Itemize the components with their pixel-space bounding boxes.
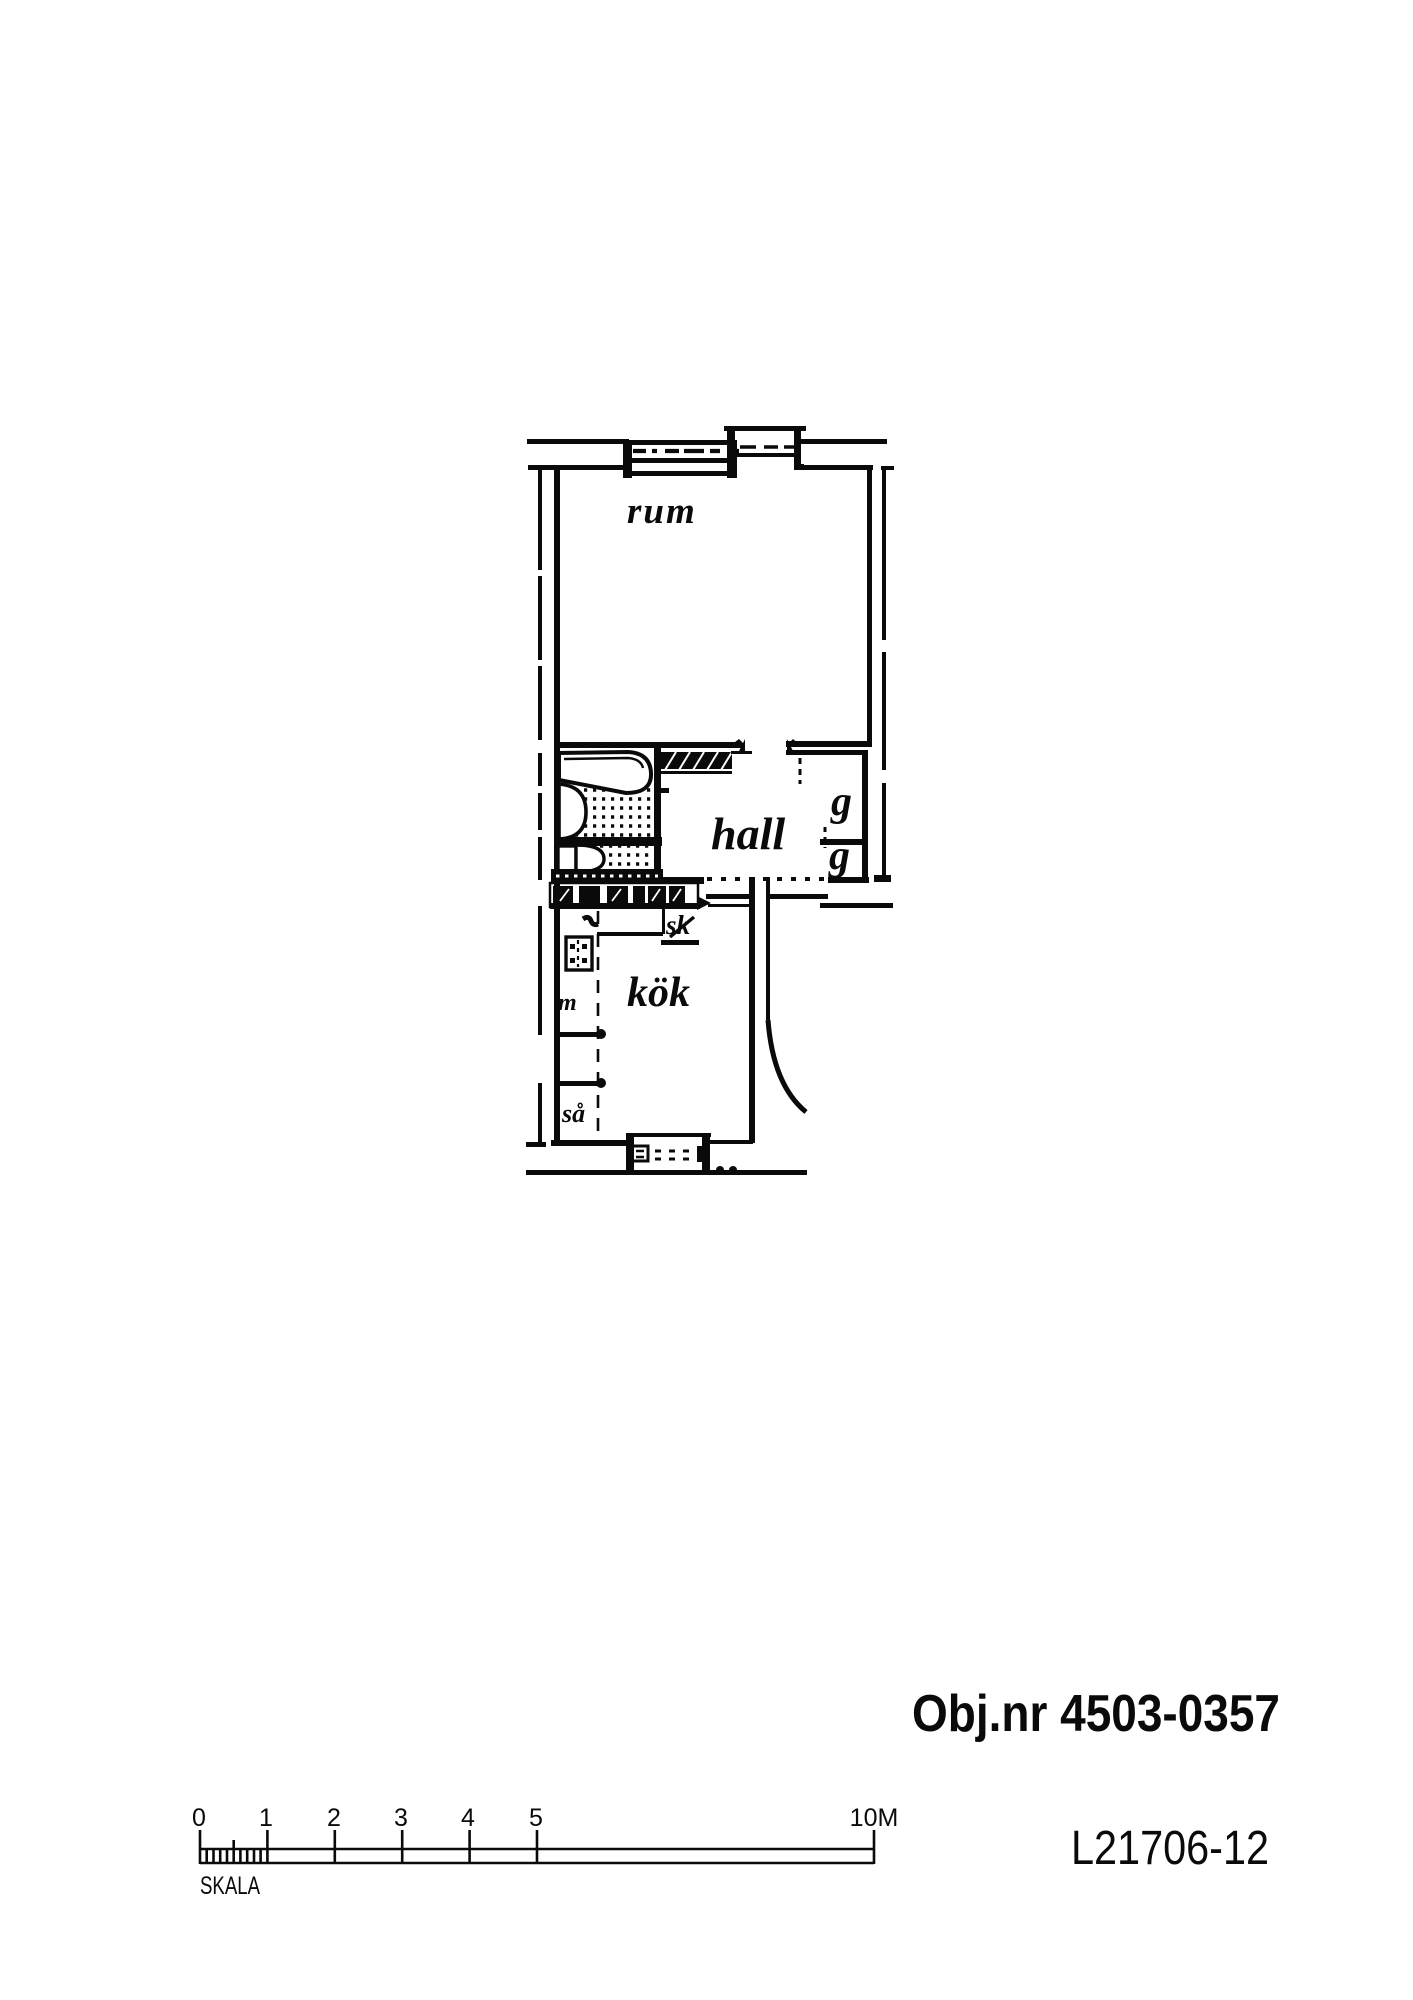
svg-text:0: 0 (192, 1804, 206, 1832)
svg-text:5: 5 (529, 1804, 543, 1832)
svg-text:g: g (830, 779, 852, 825)
svg-text:Obj.nr 4503-0357: Obj.nr 4503-0357 (912, 1685, 1280, 1743)
svg-text:hall: hall (711, 808, 785, 859)
svg-text:sk: sk (665, 910, 691, 940)
svg-text:1: 1 (259, 1804, 273, 1832)
svg-text:g: g (828, 833, 850, 879)
svg-text:2: 2 (327, 1804, 341, 1832)
svg-text:kök: kök (627, 970, 690, 1016)
svg-text:rum: rum (627, 491, 697, 532)
svg-text:10M: 10M (850, 1804, 899, 1832)
svg-text:m: m (558, 990, 577, 1016)
svg-text:SKALA: SKALA (200, 1872, 260, 1900)
svg-text:3: 3 (394, 1804, 408, 1832)
svg-text:4: 4 (461, 1804, 475, 1832)
svg-text:så: så (561, 1099, 585, 1128)
svg-text:L21706-12: L21706-12 (1071, 1822, 1269, 1875)
